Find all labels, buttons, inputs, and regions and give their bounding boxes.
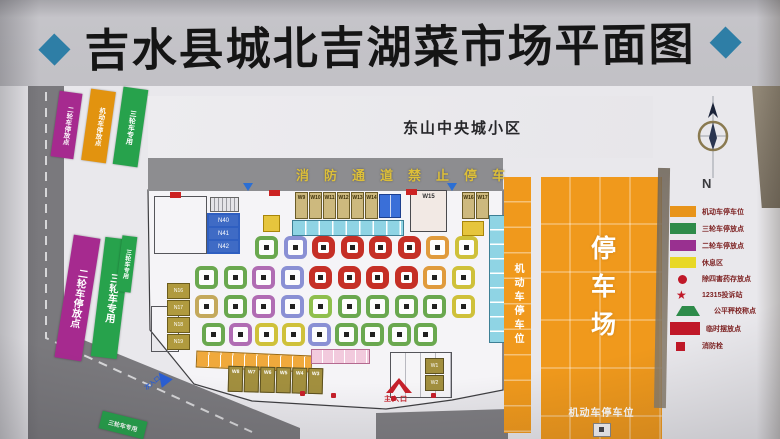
stall-island-green bbox=[335, 323, 358, 346]
legend-item: ★12315投诉站 bbox=[670, 290, 778, 300]
stall-blue-pair bbox=[379, 194, 401, 218]
legend-label: 消防栓 bbox=[702, 341, 723, 351]
stall-island-indigo bbox=[281, 295, 304, 318]
stall-island-gold bbox=[452, 295, 475, 318]
stall-island-gold bbox=[452, 266, 475, 289]
legend-rect-swatch-icon bbox=[670, 206, 696, 217]
shop-stall: W11 bbox=[323, 192, 336, 219]
stall-n-block-row: N40 bbox=[209, 215, 238, 226]
stall-strip-cyan-top bbox=[292, 220, 404, 236]
map-legend: 机动车停车位三轮车停放点二轮车停放点休息区除四害药存放点★12315投诉站公平秤… bbox=[670, 206, 778, 351]
shop-stall: W3 bbox=[308, 368, 324, 394]
parking-lot-bottom-label: 机动车停车位 bbox=[541, 404, 662, 419]
stall-island-gold bbox=[455, 236, 478, 259]
stall-row-pink bbox=[311, 349, 370, 364]
legend-triangle-swatch-icon bbox=[676, 306, 700, 316]
shop-stall: W16 bbox=[462, 192, 475, 219]
rest-area-box bbox=[263, 215, 280, 232]
parking-lot-label: 停车场 bbox=[584, 235, 620, 349]
shop-stall: N17 bbox=[167, 300, 190, 316]
legend-label: 休息区 bbox=[702, 258, 723, 268]
shop-stall: W4 bbox=[292, 367, 308, 393]
stall-block-n40-n42: N40N41N42 bbox=[207, 213, 240, 254]
stairs-block bbox=[210, 197, 239, 212]
legend-wide-swatch-icon bbox=[670, 322, 700, 335]
shop-stall: W5 bbox=[276, 367, 292, 393]
shop-stall: W1 bbox=[425, 358, 444, 374]
entrance-arrow-icon bbox=[447, 183, 457, 191]
stall-n-block-row: N41 bbox=[209, 228, 238, 239]
strip-label: 三轮车专用 bbox=[123, 109, 138, 145]
legend-item: 休息区 bbox=[670, 257, 778, 268]
strip-label: 机动车停放点 bbox=[91, 106, 106, 146]
shop-stall: W17 bbox=[476, 192, 489, 219]
strip-label: 二轮车停放点 bbox=[65, 267, 89, 329]
shop-stall: W7 bbox=[244, 366, 260, 392]
stall-island-purple bbox=[252, 295, 275, 318]
fire-hydrant-marker bbox=[431, 393, 436, 398]
road-bottom bbox=[376, 409, 508, 439]
shop-stall: W10 bbox=[309, 192, 322, 219]
shop-stall: N16 bbox=[167, 283, 190, 299]
shop-stall: W8 bbox=[228, 366, 244, 392]
stall-island-red bbox=[341, 236, 364, 259]
rest-area-box bbox=[462, 221, 484, 236]
entrance-arrow-icon bbox=[243, 183, 253, 191]
stall-island-green bbox=[255, 236, 278, 259]
stall-island-green bbox=[423, 295, 446, 318]
stall-island-orange bbox=[423, 266, 446, 289]
legend-label: 公平秤校称点 bbox=[714, 306, 756, 316]
fire-equipment-marker bbox=[406, 189, 417, 195]
hatched-area-topleft bbox=[154, 196, 207, 254]
stall-island-red bbox=[366, 266, 389, 289]
fire-hydrant-marker bbox=[300, 391, 305, 396]
stall-island-indigo bbox=[284, 236, 307, 259]
stall-island-red bbox=[395, 266, 418, 289]
stall-island-green bbox=[202, 323, 225, 346]
motor-parking-strip-label: 机动车停车位 bbox=[510, 263, 525, 347]
motor-parking-strip: 机动车停车位 bbox=[504, 177, 531, 433]
stall-island-green bbox=[195, 266, 218, 289]
legend-label: 二轮车停放点 bbox=[702, 241, 744, 251]
stall-island-green bbox=[338, 295, 361, 318]
stall-n-block-row: N42 bbox=[209, 241, 238, 252]
shop-column-left: N16N17N18N19 bbox=[167, 283, 190, 350]
community-band: 东山中央城小区 bbox=[148, 96, 653, 158]
parking-lot: 停车场 机动车停车位 bbox=[541, 177, 662, 439]
fire-lane-label: 消防通道禁止停车 bbox=[296, 165, 520, 184]
shop-pair-w1-w2: W1W2 bbox=[425, 358, 444, 391]
stall-island-red bbox=[369, 236, 392, 259]
community-label: 东山中央城小区 bbox=[403, 117, 522, 138]
stall-island-red bbox=[312, 236, 335, 259]
legend-rect-swatch-icon bbox=[670, 240, 696, 251]
legend-circle-swatch-icon bbox=[678, 275, 687, 284]
legend-label: 除四害药存放点 bbox=[702, 274, 751, 284]
stall-island-tan bbox=[195, 295, 218, 318]
shop-row-right: W16W17 bbox=[462, 192, 489, 219]
north-label: N bbox=[702, 176, 711, 191]
legend-rect-swatch-icon bbox=[670, 257, 696, 268]
stall-island-gold bbox=[282, 323, 305, 346]
legend-label: 12315投诉站 bbox=[702, 290, 742, 300]
legend-label: 三轮车停放点 bbox=[702, 224, 744, 234]
legend-item: 二轮车停放点 bbox=[670, 240, 778, 251]
stall-island-green bbox=[388, 323, 411, 346]
strip-label: 三轮车专用 bbox=[120, 249, 133, 280]
stall-island-purple bbox=[229, 323, 252, 346]
legend-rect-swatch-icon bbox=[670, 223, 696, 234]
legend-item: 临时摆放点 bbox=[670, 322, 778, 335]
shop-stall: N18 bbox=[167, 317, 190, 333]
legend-item: 消防栓 bbox=[670, 341, 778, 351]
strip-label: 二轮车停放点 bbox=[59, 105, 74, 145]
legend-item: 除四害药存放点 bbox=[670, 274, 778, 284]
stall-island-indigo bbox=[308, 323, 331, 346]
shop-row-bottom: W8W7W6W5W4W3 bbox=[228, 366, 324, 394]
market-sign-photo: ◆ 吉水县城北吉湖菜市场平面图 ◆ 二轮车停放点 机动车停放点 三轮车专用 二轮… bbox=[0, 0, 780, 439]
fire-equipment-marker bbox=[269, 190, 280, 196]
stall-island-green bbox=[414, 323, 437, 346]
shop-stall: W9 bbox=[295, 192, 308, 219]
legend-star-swatch-icon: ★ bbox=[676, 290, 688, 300]
parking-sign-icon bbox=[593, 423, 611, 437]
stall-island-green bbox=[366, 295, 389, 318]
stall-island-green bbox=[395, 295, 418, 318]
stall-island-lime bbox=[309, 295, 332, 318]
shop-row-top: W9W10W11W12W13W14 bbox=[295, 192, 378, 219]
legend-square-swatch-icon bbox=[676, 342, 685, 351]
stall-island-green bbox=[224, 266, 247, 289]
legend-label: 机动车停车位 bbox=[702, 207, 744, 217]
legend-item: 公平秤校称点 bbox=[670, 306, 778, 316]
shop-stall: W13 bbox=[351, 192, 364, 219]
stall-strip-cyan-right bbox=[489, 215, 505, 343]
legend-item: 三轮车停放点 bbox=[670, 223, 778, 234]
legend-label: 临时摆放点 bbox=[706, 324, 741, 334]
stall-island-red bbox=[309, 266, 332, 289]
fire-hydrant-marker bbox=[331, 393, 336, 398]
stall-island-gold bbox=[255, 323, 278, 346]
compass-icon bbox=[686, 92, 746, 192]
stall-island-indigo bbox=[281, 266, 304, 289]
shop-stall: W2 bbox=[425, 375, 444, 391]
main-entrance-label: 主入口 bbox=[384, 394, 408, 404]
shop-stall: W6 bbox=[260, 367, 276, 393]
shop-stall: N19 bbox=[167, 334, 190, 350]
stall-island-orange bbox=[426, 236, 449, 259]
stall-island-green bbox=[224, 295, 247, 318]
stall-island-purple bbox=[252, 266, 275, 289]
stall-island-red bbox=[338, 266, 361, 289]
shop-stall: W14 bbox=[365, 192, 378, 219]
fire-equipment-marker bbox=[170, 192, 181, 198]
room-w15: W15 bbox=[410, 190, 447, 232]
shop-stall: W12 bbox=[337, 192, 350, 219]
stall-island-red bbox=[398, 236, 421, 259]
strip-label: 三轮车专用 bbox=[107, 417, 138, 433]
stall-island-green bbox=[361, 323, 384, 346]
